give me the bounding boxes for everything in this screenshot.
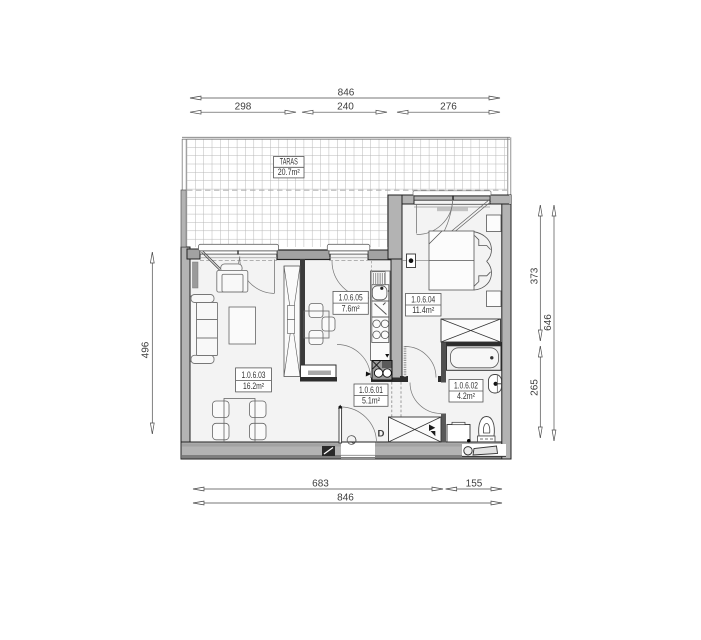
svg-text:646: 646 [543,314,554,331]
svg-text:155: 155 [466,478,483,489]
svg-text:265: 265 [530,379,541,396]
svg-text:11.4m²: 11.4m² [412,305,434,315]
svg-text:7.6m²: 7.6m² [342,304,360,314]
svg-text:1.0.6.03: 1.0.6.03 [242,370,266,380]
svg-text:5.1m²: 5.1m² [362,396,380,406]
svg-text:240: 240 [337,102,354,113]
svg-text:683: 683 [312,478,329,489]
svg-text:846: 846 [338,87,355,98]
svg-text:298: 298 [235,102,252,113]
svg-text:16.2m²: 16.2m² [243,381,264,391]
svg-text:1.0.6.05: 1.0.6.05 [339,293,363,303]
svg-text:1.0.6.02: 1.0.6.02 [454,380,478,390]
svg-text:846: 846 [337,492,354,503]
svg-text:4.2m²: 4.2m² [457,391,475,401]
svg-text:TARAS: TARAS [280,157,298,167]
svg-text:1.0.6.04: 1.0.6.04 [411,294,435,304]
svg-text:496: 496 [141,341,152,358]
svg-text:D: D [378,429,385,440]
svg-text:1.0.6.01: 1.0.6.01 [359,385,383,395]
svg-text:373: 373 [530,267,541,284]
svg-text:276: 276 [440,102,457,113]
svg-text:20.7m²: 20.7m² [278,167,300,177]
